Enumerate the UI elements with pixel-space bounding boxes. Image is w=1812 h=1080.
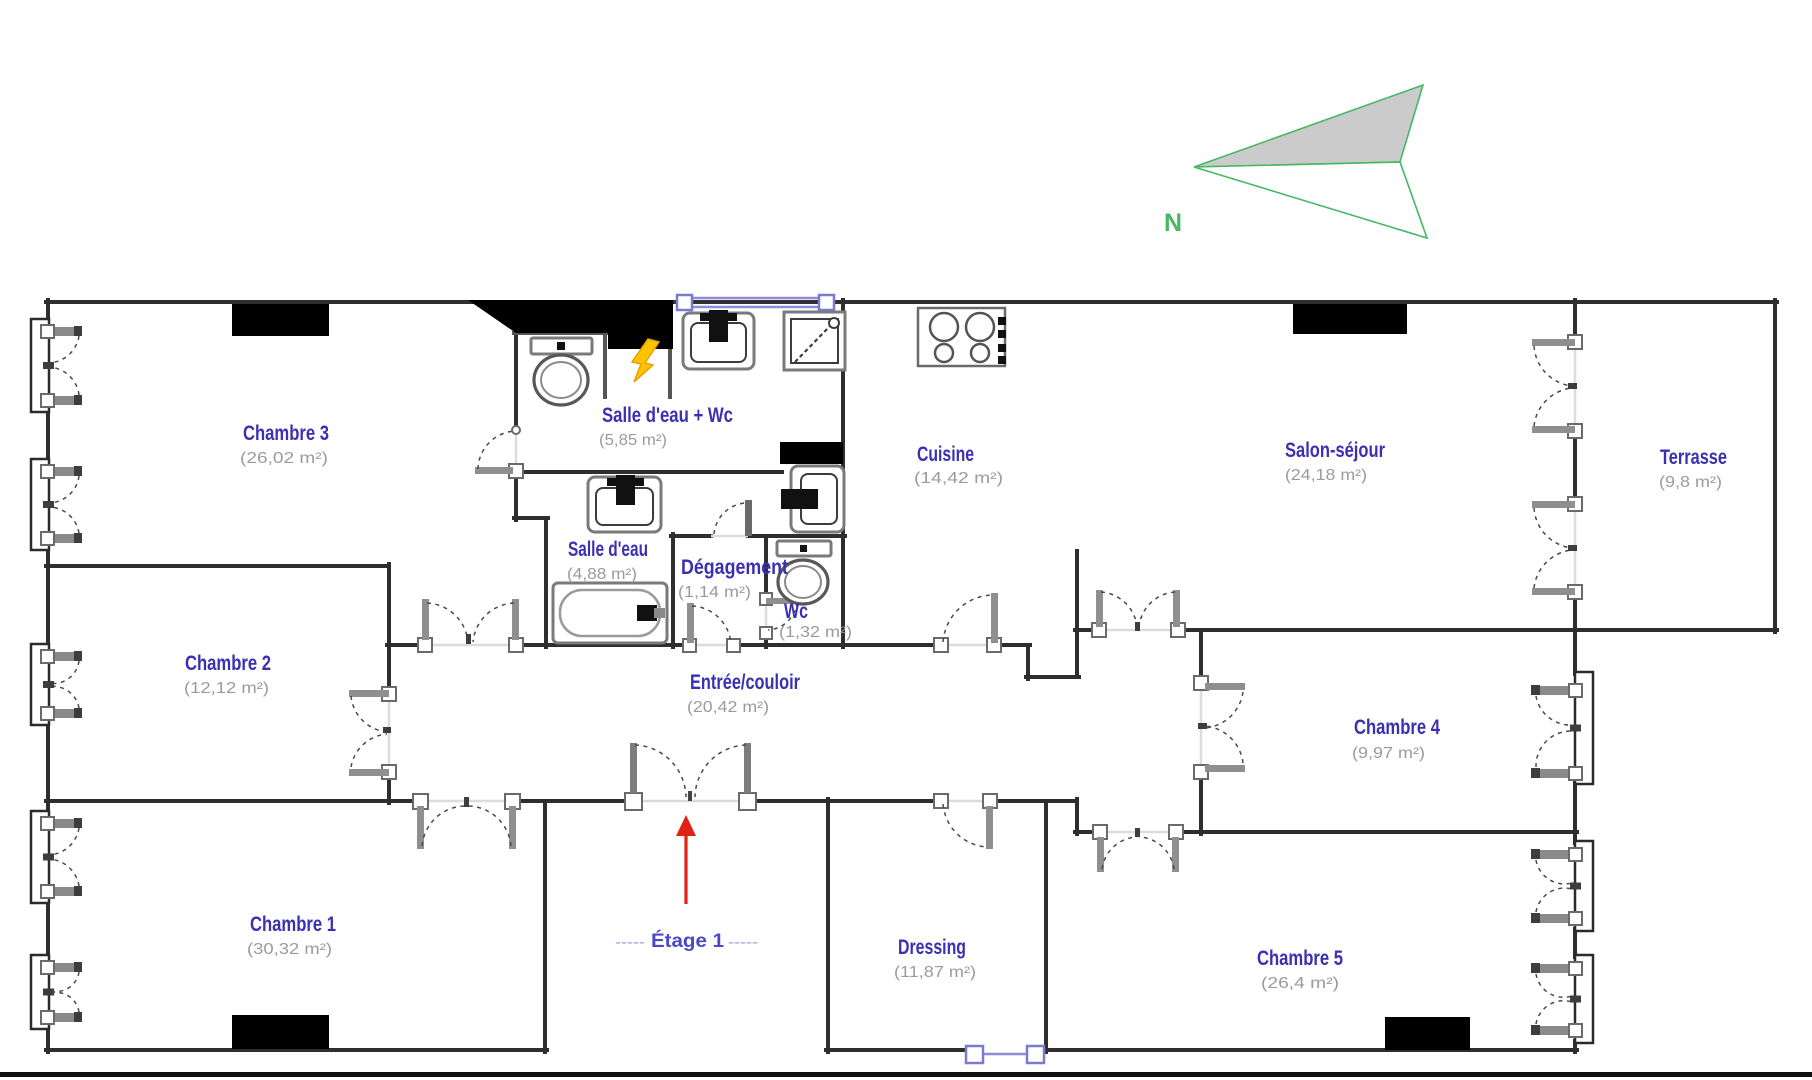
svg-text:(9,97 m²): (9,97 m²)	[1352, 745, 1425, 762]
svg-text:(14,42 m²): (14,42 m²)	[914, 470, 1003, 487]
svg-text:(30,32 m²): (30,32 m²)	[247, 941, 332, 958]
svg-text:N: N	[1164, 209, 1182, 237]
svg-text:Terrasse: Terrasse	[1660, 446, 1727, 469]
svg-text:Chambre 4: Chambre 4	[1354, 716, 1440, 739]
svg-text:Chambre 5: Chambre 5	[1257, 947, 1343, 970]
svg-text:Dressing: Dressing	[898, 936, 966, 959]
svg-text:(26,02 m²): (26,02 m²)	[240, 450, 328, 467]
svg-text:(1,32 m²): (1,32 m²)	[779, 624, 852, 641]
svg-text:(20,42 m²): (20,42 m²)	[687, 699, 769, 716]
svg-text:(5,85 m²): (5,85 m²)	[599, 432, 667, 449]
svg-text:Salle d'eau + Wc: Salle d'eau + Wc	[602, 404, 733, 427]
svg-text:Entrée/couloir: Entrée/couloir	[690, 671, 800, 694]
svg-text:(4,88 m²): (4,88 m²)	[567, 566, 637, 583]
svg-text:-----: -----	[615, 934, 645, 951]
svg-text:(9,8 m²): (9,8 m²)	[1659, 474, 1722, 491]
svg-text:Wc: Wc	[784, 600, 808, 623]
svg-text:Chambre 2: Chambre 2	[185, 652, 271, 675]
svg-text:(12,12 m²): (12,12 m²)	[184, 680, 269, 697]
svg-text:Chambre 1: Chambre 1	[250, 913, 336, 936]
svg-text:-----: -----	[728, 934, 758, 951]
svg-text:(26,4 m²): (26,4 m²)	[1261, 975, 1339, 992]
svg-text:(11,87 m²): (11,87 m²)	[894, 964, 976, 981]
svg-text:(24,18 m²): (24,18 m²)	[1285, 467, 1367, 484]
svg-text:Cuisine: Cuisine	[917, 443, 974, 466]
svg-text:Chambre 3: Chambre 3	[243, 422, 329, 445]
svg-text:Salon-séjour: Salon-séjour	[1285, 439, 1385, 462]
svg-text:Étage 1: Étage 1	[651, 930, 724, 952]
svg-text:(1,14 m²): (1,14 m²)	[678, 584, 751, 601]
svg-text:Salle d'eau: Salle d'eau	[568, 538, 648, 561]
svg-text:Dégagement: Dégagement	[681, 556, 788, 579]
